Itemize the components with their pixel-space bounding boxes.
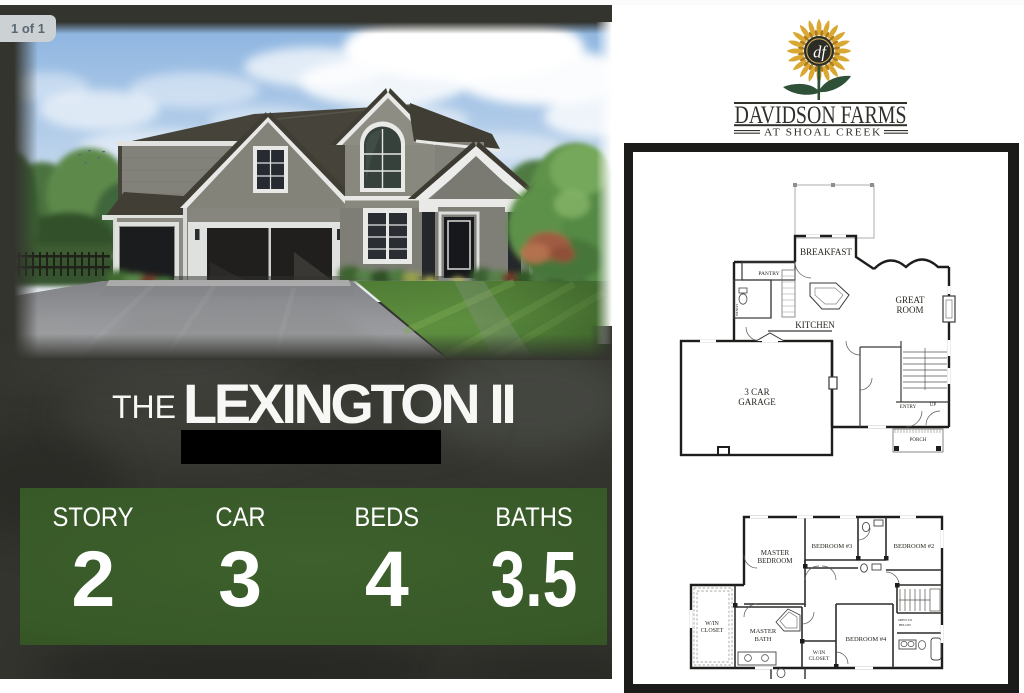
svg-text:BELOW: BELOW xyxy=(899,623,912,627)
svg-text:UP: UP xyxy=(930,403,937,408)
svg-text:ROOM: ROOM xyxy=(896,305,923,315)
svg-text:BREAKFAST: BREAKFAST xyxy=(800,247,852,257)
svg-text:BEDROOM #2: BEDROOM #2 xyxy=(894,543,935,550)
svg-text:BATH: BATH xyxy=(755,636,772,643)
svg-text:OPEN TO: OPEN TO xyxy=(898,618,913,622)
svg-text:MASTER: MASTER xyxy=(750,628,777,635)
svg-text:ENTRY: ENTRY xyxy=(900,405,917,410)
svg-text:DAVIDSON FARMS: DAVIDSON FARMS xyxy=(735,102,907,129)
svg-text:MASTER: MASTER xyxy=(761,549,790,557)
svg-text:3 CAR: 3 CAR xyxy=(744,387,769,397)
svg-text:W/IN: W/IN xyxy=(705,621,719,627)
svg-text:KITCHEN: KITCHEN xyxy=(795,320,835,330)
svg-text:PORCH: PORCH xyxy=(910,438,927,443)
svg-text:BENCH: BENCH xyxy=(735,304,739,316)
svg-text:CLOSET: CLOSET xyxy=(701,628,724,634)
svg-text:AT SHOAL CREEK: AT SHOAL CREEK xyxy=(764,128,882,139)
svg-text:BEDROOM #4: BEDROOM #4 xyxy=(846,636,887,643)
svg-text:BEDROOM: BEDROOM xyxy=(757,557,793,565)
svg-text:GARAGE: GARAGE xyxy=(738,397,776,407)
svg-text:BEDROOM #3: BEDROOM #3 xyxy=(812,543,853,550)
svg-text:PANTRY: PANTRY xyxy=(758,271,779,277)
svg-text:CLOSET: CLOSET xyxy=(809,656,830,662)
svg-text:GREAT: GREAT xyxy=(896,295,926,305)
